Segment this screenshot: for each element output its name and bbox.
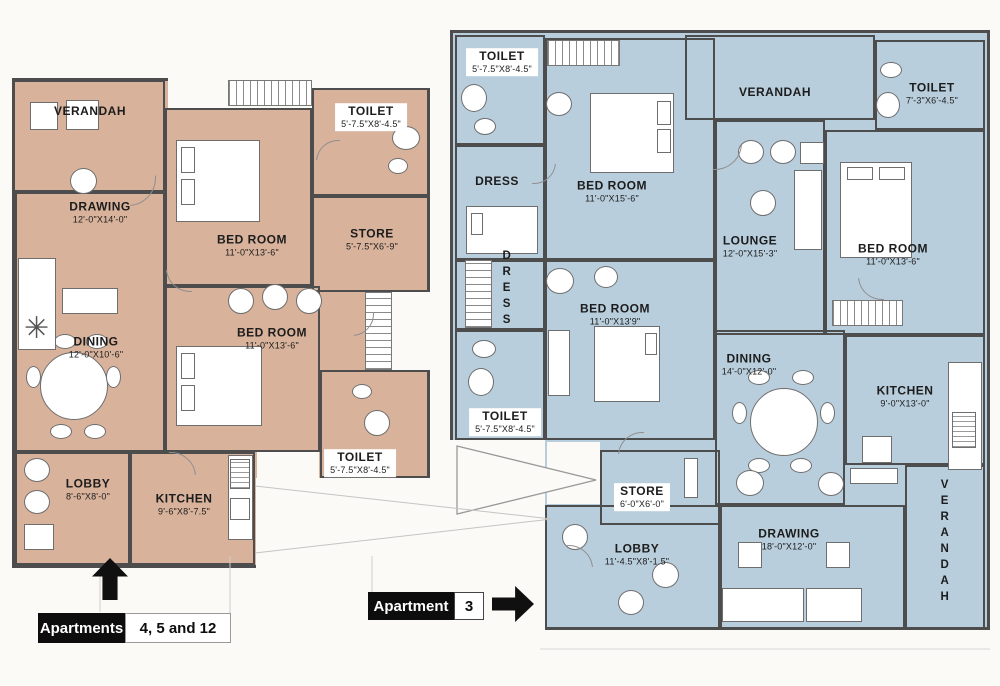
room-name: TOILET [475,410,535,424]
right-plan-tag-label: Apartment [368,592,454,620]
room-label-drawing-right: DRAWING 18'-0"X12'-0" [758,528,820,553]
room-name: TOILET [906,82,958,96]
chair-icon [820,402,835,424]
room-name: TOILET [330,451,390,465]
stair-hatch [832,300,903,326]
room-name: DRAWING [758,528,820,542]
bed-icon [176,346,262,426]
washbasin-icon [876,92,900,118]
chair-icon [732,402,747,424]
dining-table-icon [750,388,818,456]
chair-icon [296,288,322,314]
room-name: TOILET [341,105,401,119]
sofa-icon [722,588,804,622]
room-label-toilet-mid-right: TOILET 5'-7.5"X8'-4.5" [469,408,541,436]
room-label-verandah-top-right: VERANDAH [739,86,811,100]
room-label-dining-left: DINING 12'-0"X10'-6" [69,336,123,361]
cutout [309,74,433,88]
chair-icon [618,590,644,615]
room-label-toilet-tr-right: TOILET 7'-3"X6'-4.5" [906,82,958,107]
room-label-drawing-left: DRAWING 12'-0"X14'-0" [69,201,131,226]
room-label-toilet-bottom-left: TOILET 5'-7.5"X8'-4.5" [324,449,396,477]
room-name: STORE [620,485,664,499]
room-label-toilet-top-left: TOILET 5'-7.5"X8'-4.5" [335,103,407,131]
toilet-fixture-icon [474,118,496,135]
room-dims: 14'-0"X12'-0" [722,367,776,378]
room-name: BED ROOM [217,234,287,248]
sofa-icon [794,170,822,250]
chair-icon [24,490,50,514]
cutout [392,292,433,370]
stair-hatch [547,40,620,66]
stove-icon [862,436,892,463]
chair-icon [792,370,814,385]
room-label-bedroom-mid-left: BED ROOM 11'-0"X13'-6" [237,327,307,352]
room-dims: 11'-0"X13'-6" [237,341,307,352]
side-table-icon [70,168,97,194]
room-name: VERANDAH [937,479,950,607]
room-name: BED ROOM [237,327,307,341]
sofa-icon [806,588,862,622]
chair-icon [790,458,812,473]
shelf-icon [684,458,698,498]
room-dims: 12'-0"X15'-3" [723,249,777,260]
room-name: DINING [69,336,123,350]
room-dims: 6'-0"X6'-0" [620,499,664,510]
floorplan-canvas: ✳ [0,0,1000,686]
washbasin-icon [546,92,572,116]
room-dims: 5'-7.5"X8'-4.5" [475,424,535,435]
bed-icon [590,93,674,173]
room-dims: 5'-7.5"X8'-4.5" [472,64,532,75]
washbasin-icon [468,368,494,396]
room-label-store-left: STORE 5'-7.5"X6'-9" [346,228,398,253]
dining-table-icon [40,352,108,420]
room-dims: 18'-0"X12'-0" [758,542,820,553]
room-label-dress-upper-right: DRESS [475,175,519,189]
room-label-verandah-right-right: VERANDAH [937,479,950,607]
room-label-kitchen-left: KITCHEN 9'-6"X8'-7.5" [156,493,213,518]
sink-icon [230,459,250,489]
chair-icon [26,366,41,388]
armchair-icon [736,470,764,496]
room-label-lobby-left: LOBBY 8'-6"X8'-0" [66,478,111,503]
room-label-lounge-right: LOUNGE 12'-0"X15'-3" [723,235,777,260]
chair-icon [84,424,106,439]
room-name: LOUNGE [723,235,777,249]
room-name: DRAWING [69,201,131,215]
armchair-icon [818,472,844,496]
room-dims: 9'-6"X8'-7.5" [156,507,213,518]
room-name: VERANDAH [54,105,126,119]
room-name: KITCHEN [877,385,934,399]
console-icon [850,468,898,484]
chair-icon [24,458,50,482]
stair-hatch [228,80,312,106]
cutout [257,452,319,480]
chair-icon [262,284,288,310]
chair-icon [770,140,796,164]
room-dims: 11'-4.5"X8'-1.5" [605,557,669,568]
room-dims: 11'-0"X13'9" [580,317,650,328]
room-name: TOILET [472,50,532,64]
chair-icon [106,366,121,388]
room-dims: 5'-7.5"X6'-9" [346,242,398,253]
room-dims: 7'-3"X6'-4.5" [906,96,958,107]
room-dims: 12'-0"X14'-0" [69,215,131,226]
room-dims: 12'-0"X10'-6" [69,350,123,361]
room-name: LOBBY [605,543,669,557]
room-name: LOBBY [66,478,111,492]
chair-icon [546,268,574,294]
room-label-bedroom-mid-right: BED ROOM 11'-0"X13'9" [580,303,650,328]
room-dims: 5'-7.5"X8'-4.5" [341,119,401,130]
chair-icon [228,288,254,314]
room-verandah-top-right-plan [685,35,875,120]
side-table-icon [750,190,776,216]
toilet-fixture-icon [880,62,902,78]
sink-icon [952,412,976,448]
toilet-fixture-icon [352,384,372,399]
left-plan-tag-value: 4, 5 and 12 [125,613,231,643]
room-dims: 5'-7.5"X8'-4.5" [330,465,390,476]
room-name: DRESS [475,175,519,189]
sofa-icon [62,288,118,314]
room-label-store-right: STORE 6'-0"X6'-0" [614,483,670,511]
cutout [256,478,433,571]
table-icon [24,524,54,550]
armchair-icon [800,142,824,164]
cutout [547,442,600,504]
washbasin-icon [364,410,390,436]
stair-hatch [465,260,492,328]
room-label-bedroom-right-right: BED ROOM 11'-0"X13'-6" [858,243,928,268]
stove-icon [230,498,250,520]
room-name: DINING [722,353,776,367]
plant-icon: ✳ [24,314,49,344]
room-label-dining-right: DINING 14'-0"X12'-0" [722,353,776,378]
table-icon [826,542,850,568]
bed-icon [176,140,260,222]
room-label-lobby-right: LOBBY 11'-4.5"X8'-1.5" [605,543,669,568]
room-name: BED ROOM [580,303,650,317]
room-label-bedroom-top-left: BED ROOM 11'-0"X13'-6" [217,234,287,259]
washbasin-icon [461,84,487,112]
room-name: KITCHEN [156,493,213,507]
chair-icon [50,424,72,439]
bed-icon [466,206,538,254]
room-label-toilet-tl-right: TOILET 5'-7.5"X8'-4.5" [466,48,538,76]
room-dims: 9'-0"X13'-0" [877,399,934,410]
room-name: VERANDAH [739,86,811,100]
toilet-fixture-icon [472,340,496,358]
bed-icon [594,326,660,402]
chair-icon [594,266,618,288]
room-name: BED ROOM [858,243,928,257]
room-name: DRESS [499,250,512,330]
room-dims: 8'-6"X8'-0" [66,492,111,503]
room-name: STORE [346,228,398,242]
left-plan-tag-label: Apartments [38,613,125,643]
room-label-dress-mid-right: DRESS [499,250,512,330]
wardrobe-icon [548,330,570,396]
room-name: BED ROOM [577,180,647,194]
room-label-kitchen-right: KITCHEN 9'-0"X13'-0" [877,385,934,410]
right-plan-tag-value: 3 [454,592,484,620]
room-label-verandah-left: VERANDAH [54,105,126,119]
room-dims: 11'-0"X15'-6" [577,194,647,205]
room-label-bedroom-top-right: BED ROOM 11'-0"X15'-6" [577,180,647,205]
room-dims: 11'-0"X13'-6" [858,257,928,268]
room-dims: 11'-0"X13'-6" [217,248,287,259]
toilet-fixture-icon [388,158,408,174]
